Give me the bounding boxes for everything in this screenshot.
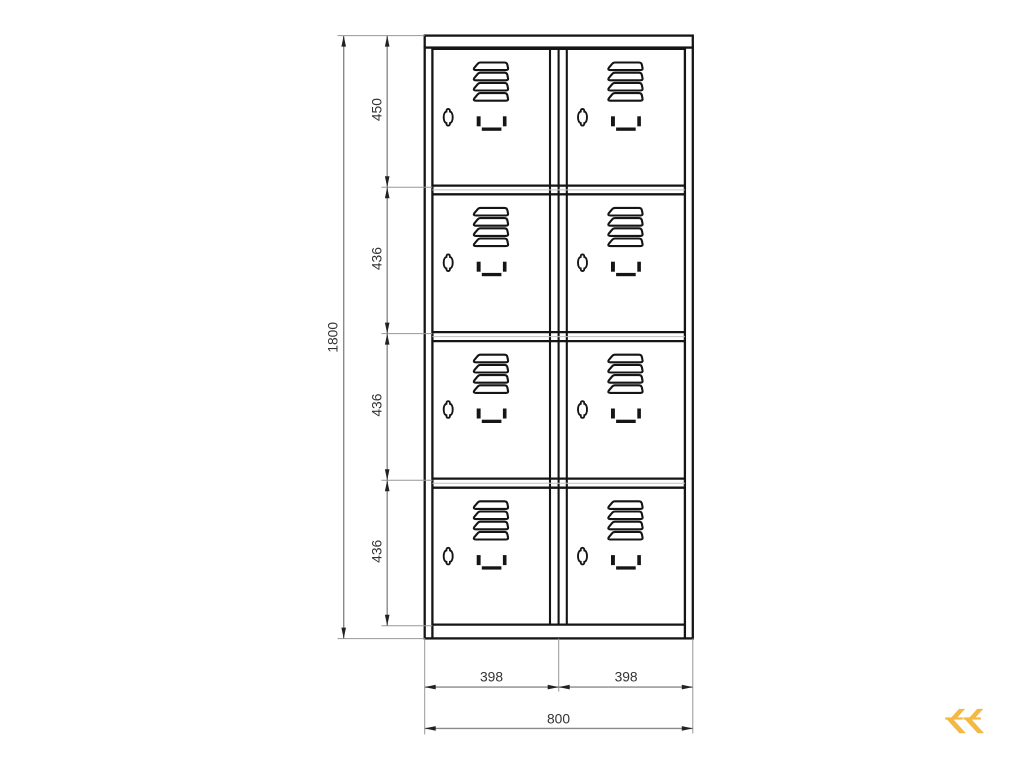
svg-text:398: 398: [615, 670, 638, 685]
svg-text:450: 450: [370, 98, 385, 121]
svg-text:436: 436: [370, 247, 385, 270]
svg-text:398: 398: [480, 670, 503, 685]
svg-text:800: 800: [547, 711, 570, 726]
svg-text:1800: 1800: [326, 322, 341, 353]
svg-text:436: 436: [370, 393, 385, 416]
svg-text:436: 436: [370, 539, 385, 562]
